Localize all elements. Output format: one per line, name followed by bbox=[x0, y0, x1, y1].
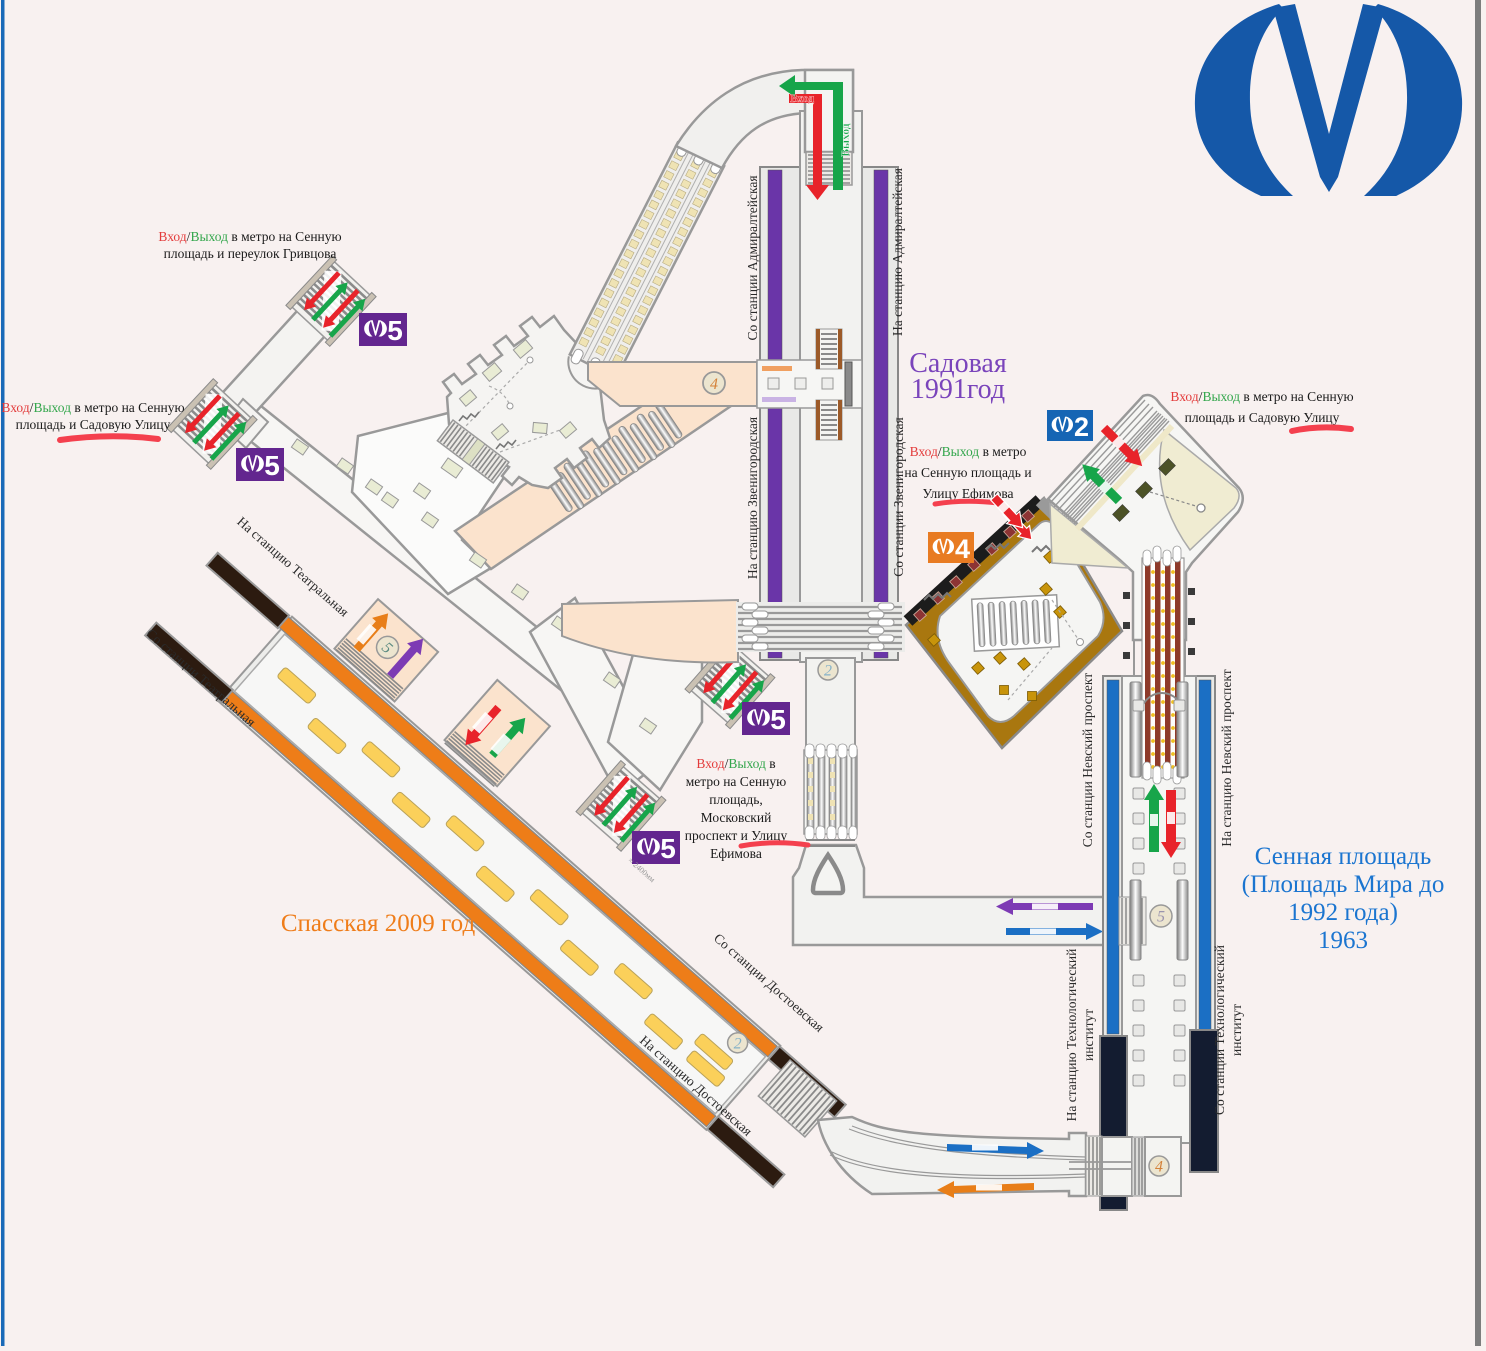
svg-text:Ефимова: Ефимова bbox=[710, 846, 762, 861]
svg-text:институт: институт bbox=[1081, 1009, 1096, 1061]
svg-text:5: 5 bbox=[660, 833, 676, 864]
svg-text:на Сенную площадь и: на Сенную площадь и bbox=[904, 465, 1031, 480]
svg-text:метро на Сенную: метро на Сенную bbox=[686, 774, 787, 789]
svg-text:(Площадь Мира до: (Площадь Мира до bbox=[1242, 871, 1445, 898]
svg-text:площадь,: площадь, bbox=[709, 792, 763, 807]
svg-text:2: 2 bbox=[734, 1035, 742, 1052]
svg-text:1992 года): 1992 года) bbox=[1288, 899, 1398, 926]
svg-text:Вход/Выход в метро: Вход/Выход в метро bbox=[910, 444, 1027, 459]
svg-text:На станцию Невский проспект: На станцию Невский проспект bbox=[1219, 669, 1234, 846]
svg-text:Сенная площадь: Сенная площадь bbox=[1255, 843, 1432, 870]
svg-text:5: 5 bbox=[1157, 909, 1165, 926]
svg-text:4: 4 bbox=[1155, 1159, 1163, 1176]
svg-text:4: 4 bbox=[955, 534, 970, 564]
svg-text:На станцию Адмиралтейская: На станцию Адмиралтейская bbox=[890, 168, 905, 336]
svg-text:4: 4 bbox=[710, 376, 718, 393]
svg-text:Со станции Технологический: Со станции Технологический bbox=[1212, 945, 1227, 1115]
svg-text:Спасская 2009 год: Спасская 2009 год bbox=[281, 910, 476, 937]
svg-text:На станцию Звенигородская: На станцию Звенигородская bbox=[745, 417, 760, 579]
svg-text:5: 5 bbox=[264, 450, 280, 481]
svg-text:На станцию Технологический: На станцию Технологический bbox=[1064, 949, 1079, 1122]
svg-text:5: 5 bbox=[387, 315, 403, 346]
svg-text:Московский: Московский bbox=[701, 810, 772, 825]
svg-text:Вход/Выход в метро на Сенную: Вход/Выход в метро на Сенную bbox=[158, 229, 341, 244]
svg-text:Выход: Выход bbox=[840, 123, 852, 156]
svg-text:площадь и Садовую Улицу: площадь и Садовую Улицу bbox=[16, 417, 171, 432]
svg-text:Вход/Выход в метро на Сенную: Вход/Выход в метро на Сенную bbox=[1170, 389, 1353, 404]
svg-text:Со станции Невский проспект: Со станции Невский проспект bbox=[1080, 673, 1095, 848]
svg-text:2: 2 bbox=[824, 663, 832, 680]
svg-text:институт: институт bbox=[1229, 1004, 1244, 1056]
svg-text:Со станции Адмиралтейская: Со станции Адмиралтейская bbox=[745, 175, 760, 340]
svg-text:Вход/Выход в: Вход/Выход в bbox=[696, 756, 775, 771]
svg-text:1963: 1963 bbox=[1318, 927, 1368, 954]
svg-text:Вход/Выход в метро на Сенную: Вход/Выход в метро на Сенную bbox=[1, 400, 184, 415]
svg-text:Вход: Вход bbox=[790, 93, 814, 105]
svg-text:площадь и Садовую Улицу: площадь и Садовую Улицу bbox=[1185, 410, 1340, 425]
svg-text:2: 2 bbox=[1074, 412, 1089, 442]
svg-text:площадь и переулок Гривцова: площадь и переулок Гривцова bbox=[164, 246, 337, 261]
svg-text:5: 5 bbox=[770, 704, 786, 735]
svg-text:Со станции Звенигородская: Со станции Звенигородская bbox=[891, 417, 906, 576]
svg-text:1991год: 1991год bbox=[911, 374, 1005, 405]
